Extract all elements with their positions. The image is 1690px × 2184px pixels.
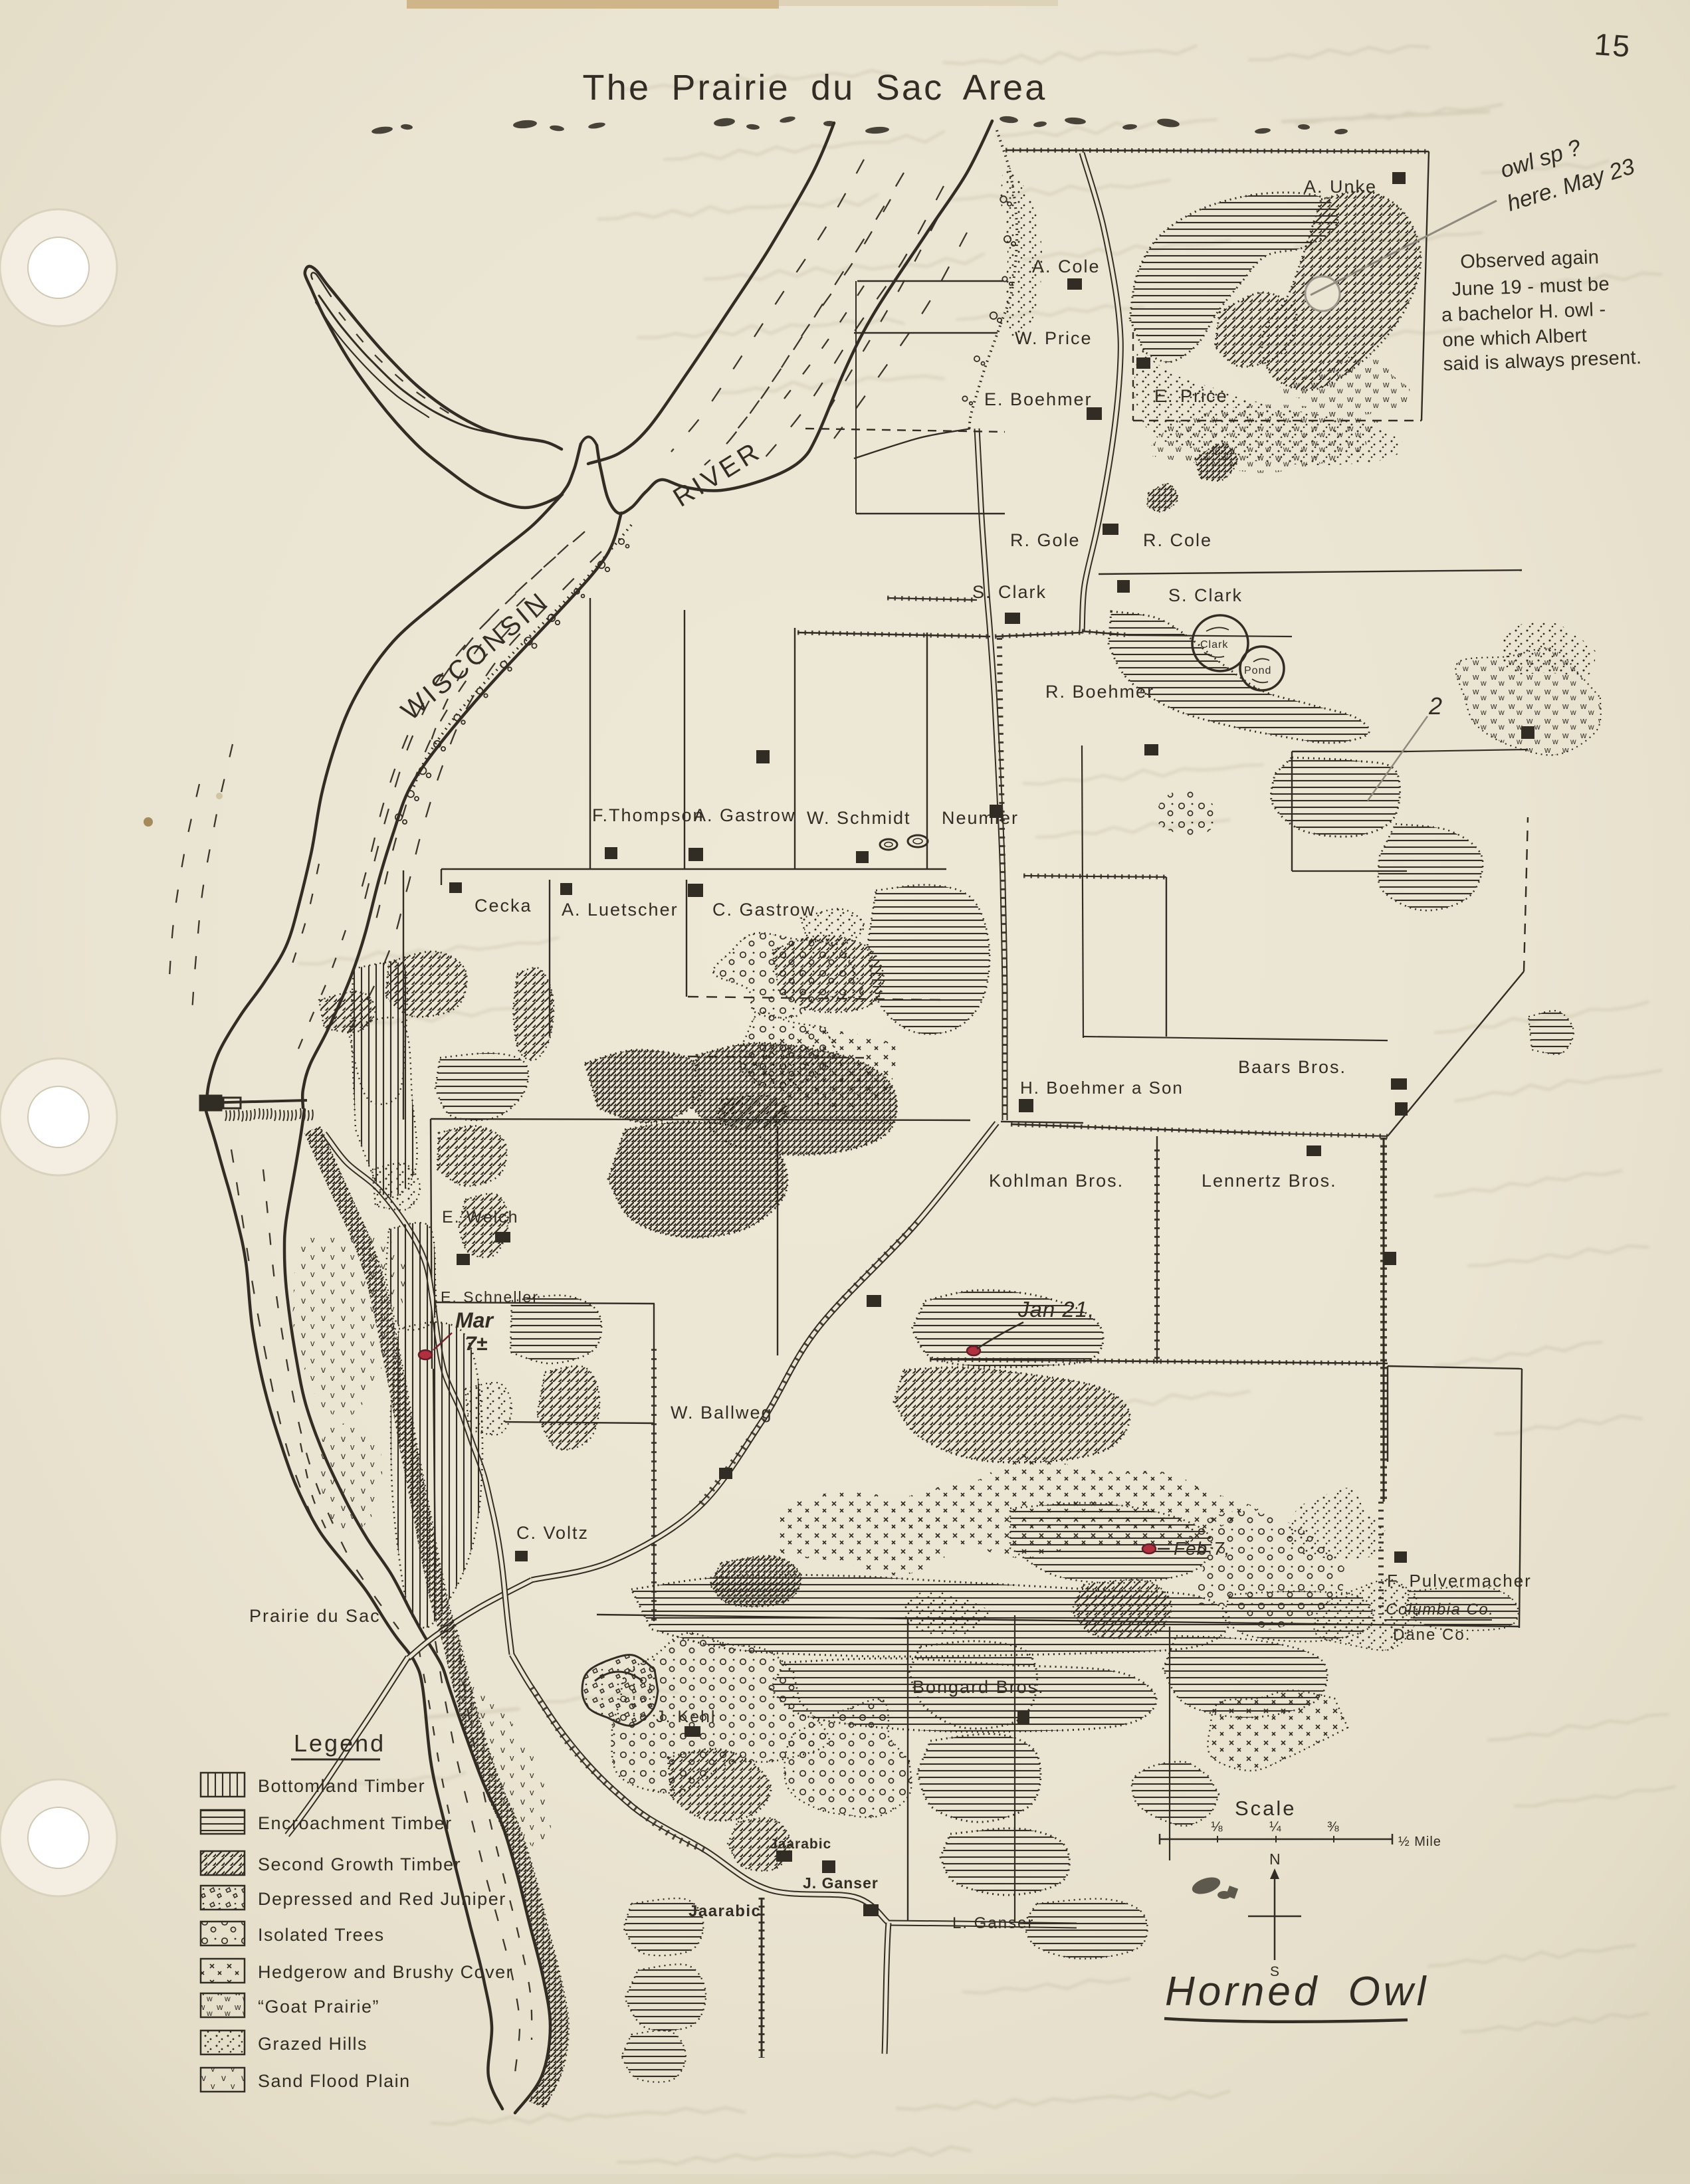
svg-text:F. Pulvermacher: F. Pulvermacher: [1387, 1571, 1532, 1591]
svg-text:Sand Flood Plain: Sand Flood Plain: [258, 2071, 411, 2091]
svg-text:Jan 21,: Jan 21,: [1017, 1297, 1095, 1322]
svg-text:A. Gastrow: A. Gastrow: [694, 805, 796, 825]
svg-text:⅜: ⅜: [1327, 1819, 1339, 1835]
svg-text:Lennertz Bros.: Lennertz Bros.: [1202, 1171, 1337, 1191]
svg-text:F.Thompson: F.Thompson: [592, 805, 704, 825]
svg-text:Second Growth Timber: Second Growth Timber: [258, 1854, 461, 1874]
svg-text:Pond: Pond: [1244, 665, 1271, 676]
svg-text:E. Welch: E. Welch: [442, 1208, 519, 1227]
svg-text:Horned Owl: Horned Owl: [1165, 1969, 1429, 2015]
svg-text:Grazed Hills: Grazed Hills: [258, 2034, 368, 2054]
svg-text:J. Kehl: J. Kehl: [656, 1708, 716, 1726]
svg-text:R. Gole: R. Gole: [1010, 530, 1081, 550]
svg-text:A. Luetscher: A. Luetscher: [562, 900, 679, 920]
svg-text:A. Cole: A. Cole: [1032, 256, 1101, 276]
svg-text:Feb 7,: Feb 7,: [1174, 1538, 1230, 1559]
svg-text:Clark: Clark: [1200, 639, 1228, 650]
svg-text:Bottomland Timber: Bottomland Timber: [258, 1776, 425, 1796]
svg-text:7±: 7±: [465, 1333, 488, 1355]
svg-text:Columbia Co.: Columbia Co.: [1386, 1601, 1494, 1619]
svg-text:15: 15: [1593, 27, 1632, 64]
svg-text:W. Ballweg: W. Ballweg: [671, 1403, 773, 1423]
svg-text:H. Boehmer a Son: H. Boehmer a Son: [1020, 1078, 1184, 1098]
svg-text:“Goat Prairie”: “Goat Prairie”: [258, 1997, 379, 2017]
svg-text:J. Ganser: J. Ganser: [803, 1874, 879, 1892]
svg-text:S. Clark: S. Clark: [972, 582, 1047, 602]
svg-text:Mar: Mar: [455, 1308, 494, 1332]
svg-text:Hedgerow and Brushy Cover: Hedgerow and Brushy Cover: [258, 1962, 513, 1982]
svg-text:N: N: [1269, 1850, 1281, 1868]
svg-text:¼: ¼: [1269, 1819, 1281, 1835]
svg-text:Dane Co.: Dane Co.: [1393, 1626, 1471, 1644]
svg-text:Bongard Bros.: Bongard Bros.: [912, 1677, 1045, 1697]
svg-text:Legend: Legend: [294, 1730, 385, 1757]
svg-text:E. Boehmer: E. Boehmer: [984, 389, 1093, 409]
svg-text:W. Price: W. Price: [1015, 328, 1093, 348]
svg-text:C. Voltz: C. Voltz: [516, 1523, 589, 1543]
svg-text:Baars Bros.: Baars Bros.: [1238, 1057, 1346, 1077]
svg-text:2: 2: [1428, 692, 1442, 720]
svg-text:L. Ganser: L. Ganser: [952, 1914, 1034, 1932]
svg-text:½ Mile: ½ Mile: [1398, 1835, 1441, 1849]
svg-text:A. Unke: A. Unke: [1304, 177, 1377, 197]
svg-text:Jaarabic: Jaarabic: [688, 1902, 761, 1920]
svg-text:Kohlman Bros.: Kohlman Bros.: [989, 1171, 1124, 1191]
svg-text:E. Price: E. Price: [1154, 386, 1228, 406]
svg-text:Prairie du Sac: Prairie du Sac: [249, 1606, 381, 1626]
svg-text:Jaarabic: Jaarabic: [770, 1837, 831, 1852]
svg-text:Neumier: Neumier: [942, 808, 1019, 828]
svg-text:Cecka: Cecka: [475, 896, 532, 916]
svg-text:The Prairie du Sac Area: The Prairie du Sac Area: [583, 68, 1047, 108]
svg-text:S. Clark: S. Clark: [1168, 585, 1243, 605]
svg-text:R. Boehmer: R. Boehmer: [1045, 682, 1154, 702]
svg-text:E. Schneller: E. Schneller: [441, 1288, 539, 1306]
svg-text:C. Gastrow: C. Gastrow: [712, 900, 815, 920]
svg-text:Encroachment Timber: Encroachment Timber: [258, 1813, 453, 1833]
svg-text:Scale: Scale: [1235, 1797, 1297, 1820]
svg-text:Depressed and Red Juniper: Depressed and Red Juniper: [258, 1889, 506, 1909]
svg-text:R. Cole: R. Cole: [1143, 530, 1212, 550]
svg-text:Isolated Trees: Isolated Trees: [258, 1925, 385, 1945]
svg-text:W. Schmidt: W. Schmidt: [807, 808, 911, 828]
svg-text:⅛: ⅛: [1211, 1819, 1223, 1835]
